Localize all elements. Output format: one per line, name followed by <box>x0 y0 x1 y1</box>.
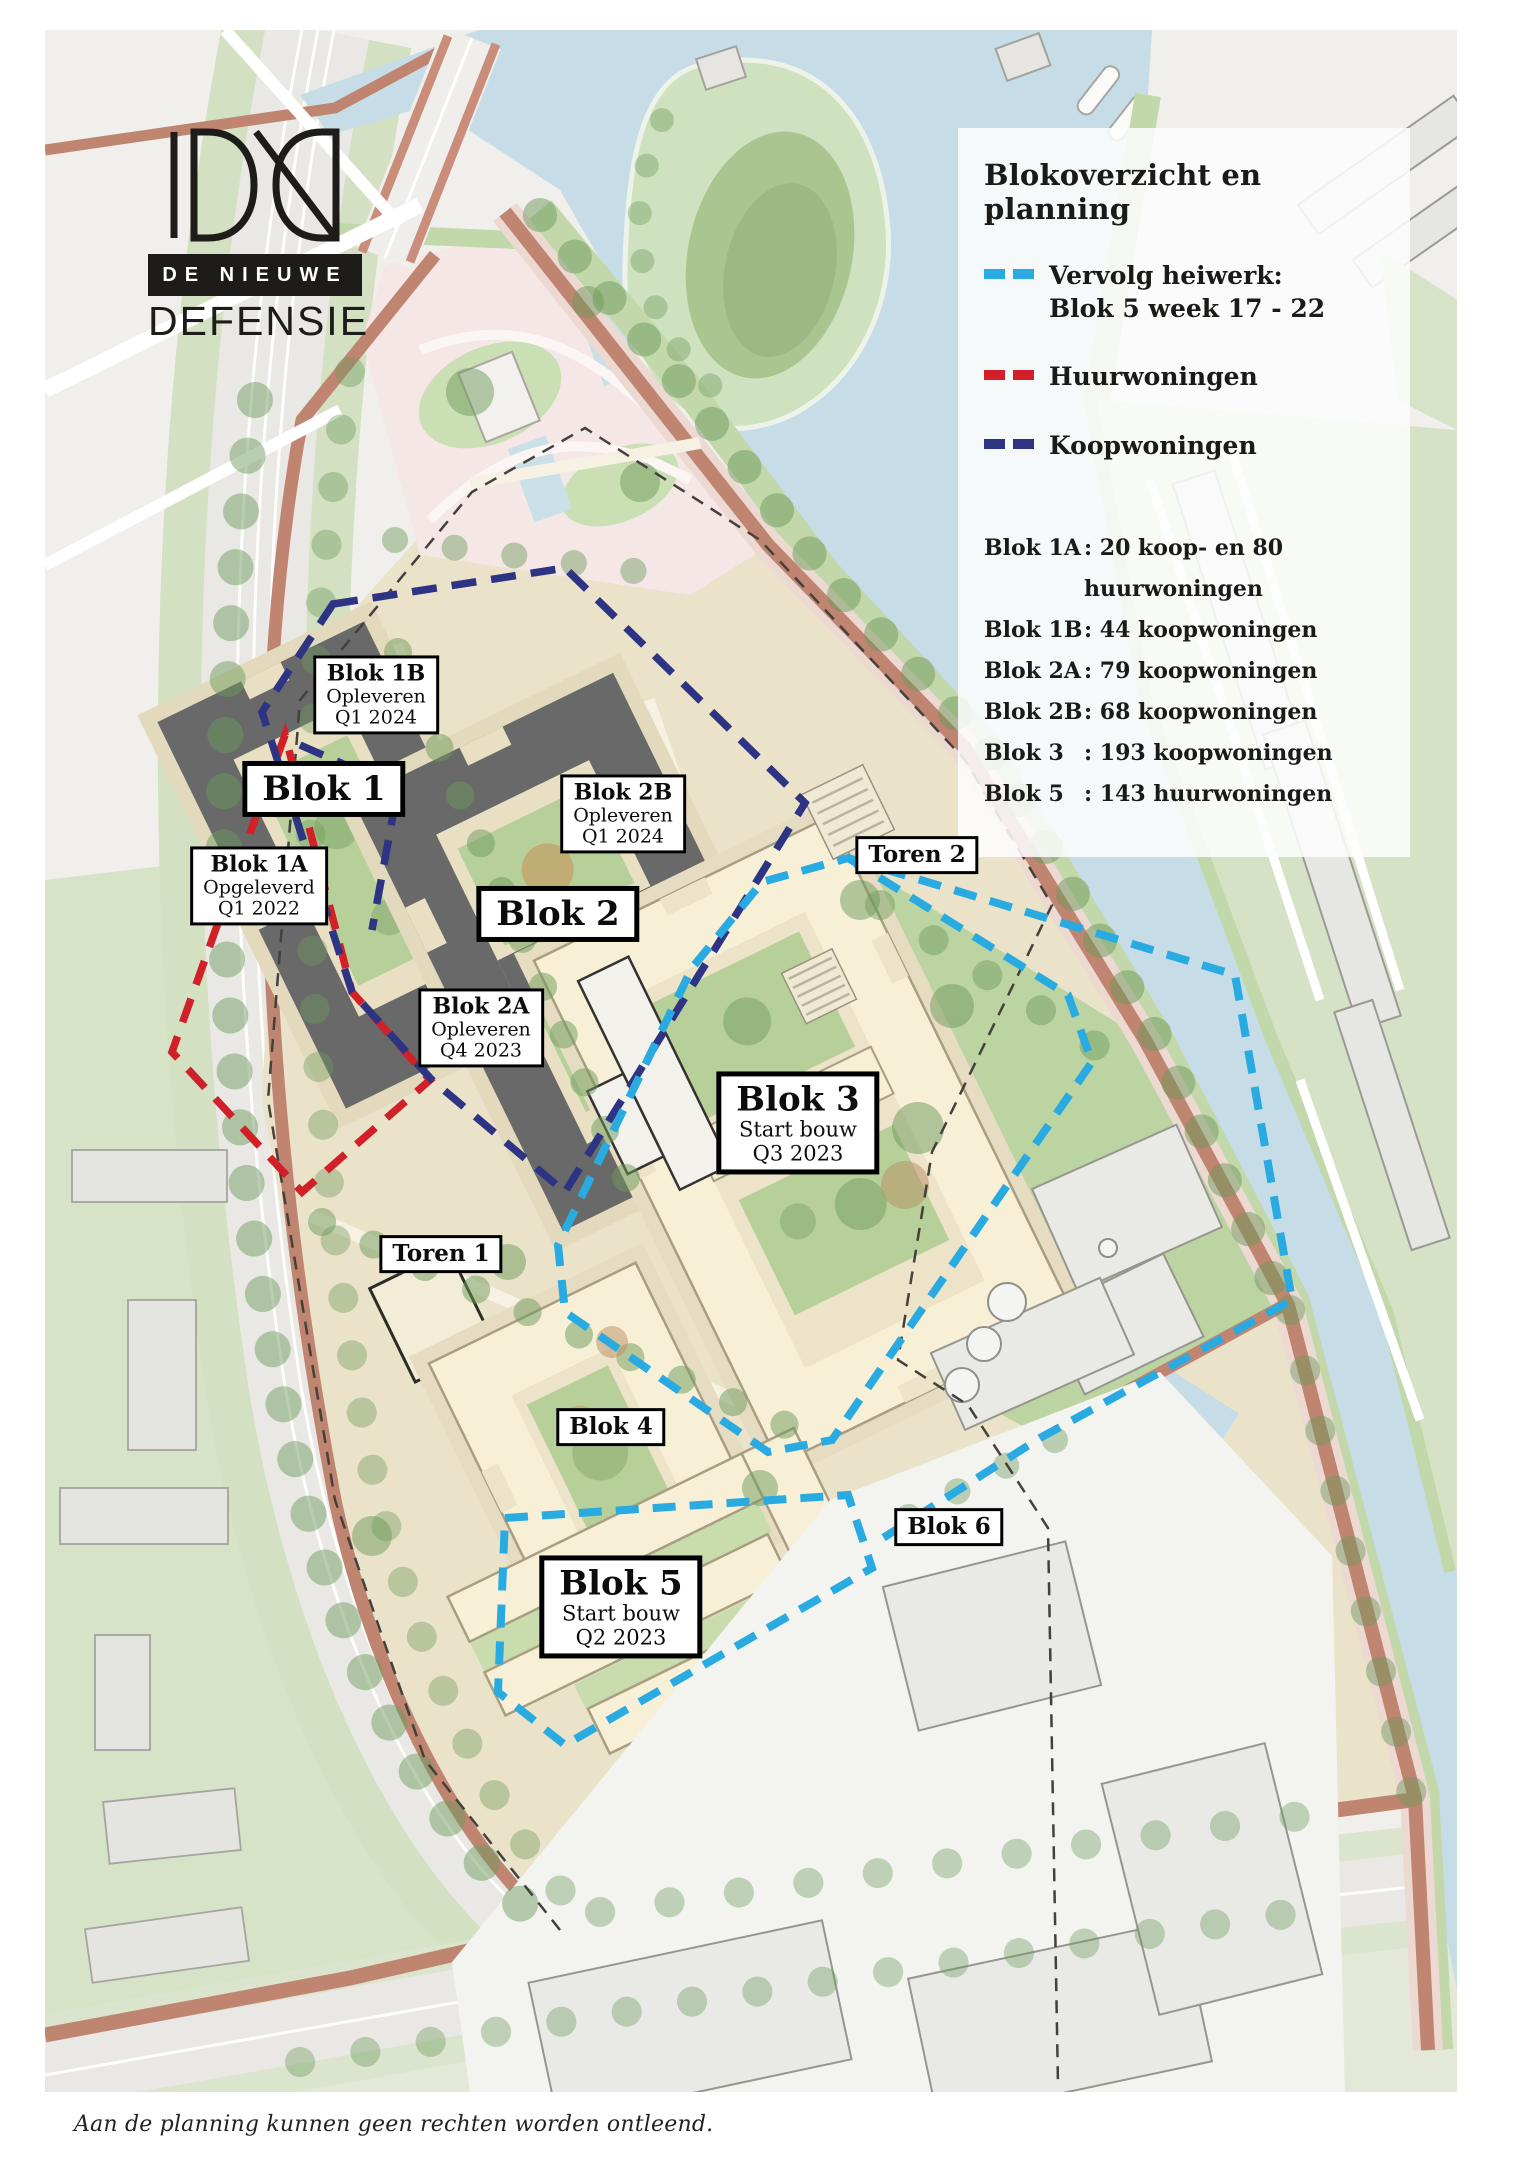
map-label-toren1: Toren 1 <box>379 1235 502 1273</box>
legend-item-koopwoningen: Koopwoningen <box>984 430 1386 463</box>
map-label-blok6: Blok 6 <box>894 1508 1003 1546</box>
legend-block-list: Blok 1A : 20 koop- en 80 huurwoningen Bl… <box>984 528 1386 815</box>
map-label-blok2a: Blok 2A Opleveren Q4 2023 <box>418 988 544 1067</box>
map-label-blok5: Blok 5 Start bouw Q2 2023 <box>539 1555 702 1658</box>
legend-item-label2: Blok 5 week 17 - 22 <box>1049 294 1325 323</box>
block-name: Blok 5 <box>984 774 1084 815</box>
page: { "brand": { "line1": "DE NIEUWE", "line… <box>0 0 1527 2160</box>
dash-icon <box>1013 439 1034 449</box>
dash-icon <box>1013 269 1034 279</box>
block-name: Blok 2B <box>984 692 1084 733</box>
brand-line1: DE NIEUWE <box>148 254 362 296</box>
block-row: Blok 5 : 143 huurwoningen <box>984 774 1386 815</box>
dash-icon <box>984 439 1005 449</box>
block-row: Blok 1A : 20 koop- en 80 huurwoningen <box>984 528 1386 610</box>
block-name: Blok 2A <box>984 651 1084 692</box>
dash-icon <box>984 370 1005 380</box>
block-row: Blok 2A : 79 koopwoningen <box>984 651 1386 692</box>
block-name: Blok 1B <box>984 610 1084 651</box>
legend-title: Blokoverzicht en planning <box>984 158 1386 226</box>
legend-item-heiwerk: Vervolg heiwerk: Blok 5 week 17 - 22 <box>984 260 1386 325</box>
block-value: : 143 huurwoningen <box>1084 774 1386 815</box>
map-label-blok3: Blok 3 Start bouw Q3 2023 <box>716 1071 879 1174</box>
map-label-blok2b: Blok 2B Opleveren Q1 2024 <box>560 774 686 853</box>
map-label-blok1b: Blok 1B Opleveren Q1 2024 <box>313 655 439 734</box>
map-label-toren2: Toren 2 <box>855 836 978 874</box>
block-row: Blok 1B : 44 koopwoningen <box>984 610 1386 651</box>
legend-panel: Blokoverzicht en planning Vervolg heiwer… <box>958 128 1410 857</box>
map-label-blok1: Blok 1 <box>242 761 405 817</box>
dash-swatch-heiwerk <box>984 269 1034 279</box>
dash-swatch-huurwoningen <box>984 370 1034 380</box>
dash-swatch-koopwoningen <box>984 439 1034 449</box>
block-name: Blok 3 <box>984 733 1084 774</box>
block-name: Blok 1A <box>984 528 1084 610</box>
block-value: : 44 koopwoningen <box>1084 610 1386 651</box>
block-row: Blok 3 : 193 koopwoningen <box>984 733 1386 774</box>
legend-item-label: Huurwoningen <box>1049 361 1258 394</box>
legend-item-label: Koopwoningen <box>1049 430 1257 463</box>
block-value: : 20 koop- en 80 huurwoningen <box>1084 528 1386 610</box>
legend-item-huurwoningen: Huurwoningen <box>984 361 1386 394</box>
brand-line2: DEFENSIE <box>148 298 362 345</box>
map-label-blok4: Blok 4 <box>556 1408 665 1446</box>
block-value: : 193 koopwoningen <box>1084 733 1386 774</box>
map-label-blok2: Blok 2 <box>476 886 639 942</box>
legend-item-label: Vervolg heiwerk: <box>1049 261 1283 290</box>
brand-mark-icon <box>160 126 350 244</box>
dash-icon <box>1013 370 1034 380</box>
disclaimer-text: Aan de planning kunnen geen rechten word… <box>74 2112 713 2137</box>
map-label-blok1a: Blok 1A Opgeleverd Q1 2022 <box>190 846 328 925</box>
block-value: : 79 koopwoningen <box>1084 651 1386 692</box>
dash-icon <box>984 269 1005 279</box>
brand-logo: DE NIEUWE DEFENSIE <box>148 126 362 345</box>
block-row: Blok 2B : 68 koopwoningen <box>984 692 1386 733</box>
block-value: : 68 koopwoningen <box>1084 692 1386 733</box>
